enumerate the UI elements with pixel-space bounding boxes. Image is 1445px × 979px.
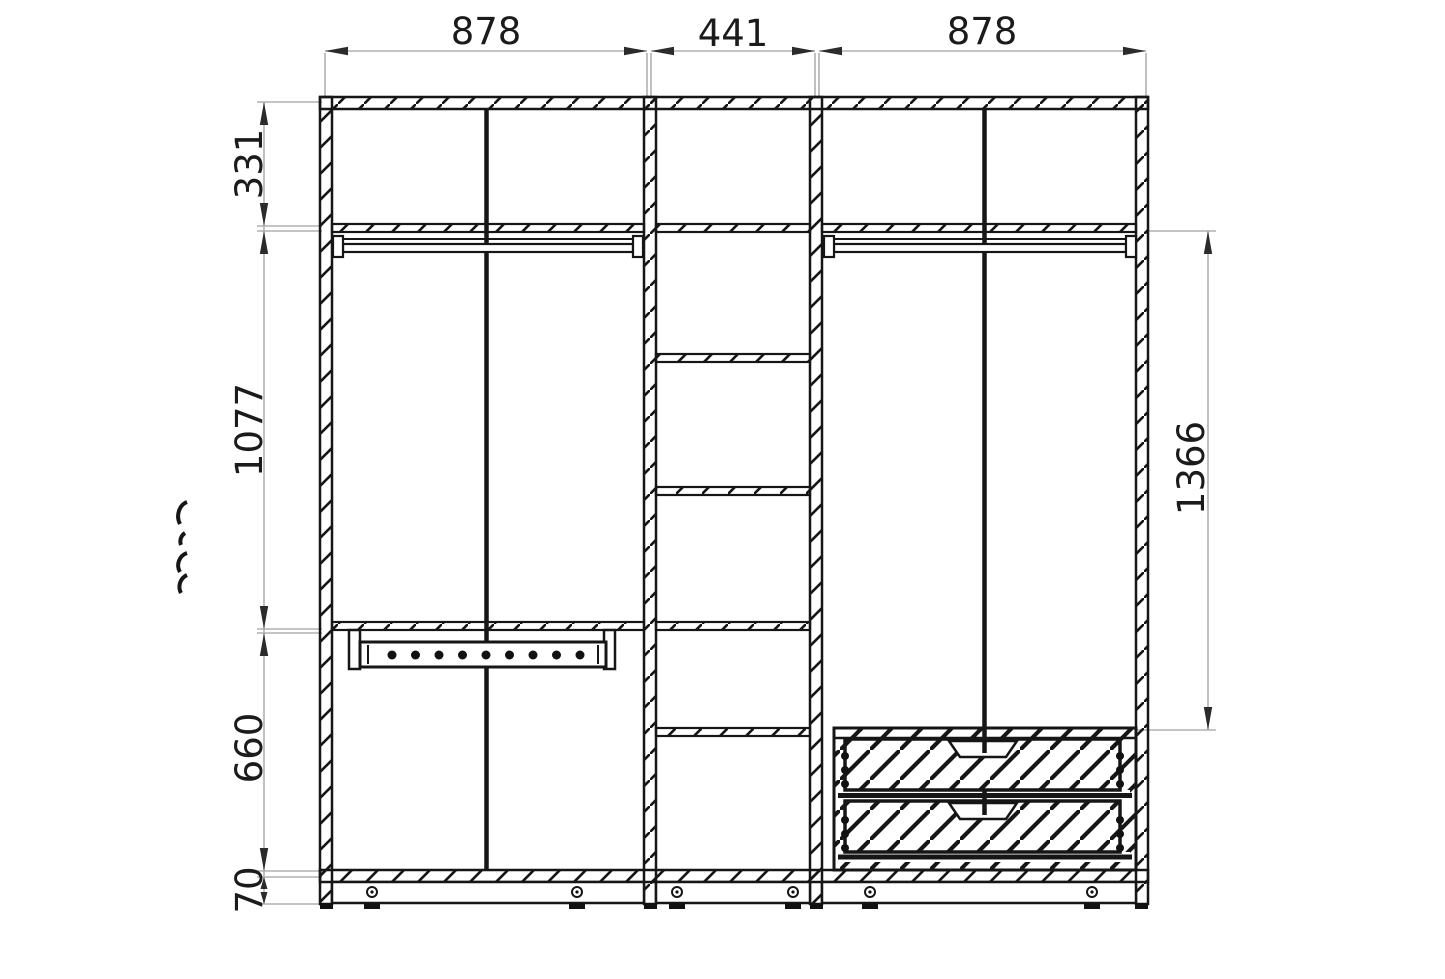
trouser-rack: [349, 630, 615, 669]
wardrobe-body: [320, 97, 1148, 909]
shelf: [332, 224, 644, 232]
shelf: [822, 224, 1136, 232]
rail-bracket: [824, 236, 834, 257]
dim-top-left-width: 878: [451, 10, 522, 53]
dim-top-middle-width: 441: [698, 12, 769, 55]
arrow-icon: [1123, 47, 1146, 55]
clipped-text-fragments: [178, 502, 187, 593]
dim-left-lower-section: 660: [228, 713, 271, 784]
shelf: [656, 487, 810, 495]
arrow-icon: [792, 47, 815, 55]
arrow-icon: [260, 231, 268, 254]
arrow-icon: [260, 633, 268, 656]
bottom-panel: [320, 870, 1148, 882]
partition-wall-left: [644, 97, 656, 904]
shelf: [656, 354, 810, 362]
wardrobe-technical-drawing: 878 441 878 331 1077 660 70 1366: [0, 0, 1445, 979]
drawer-unit: [834, 728, 1136, 870]
extension-line: [325, 53, 1146, 96]
arrow-icon: [260, 203, 268, 226]
dim-top-right-width: 878: [947, 10, 1018, 53]
arrow-icon: [624, 47, 647, 55]
right-wall: [1136, 97, 1148, 904]
arrow-icon: [260, 606, 268, 629]
arrow-icon: [1204, 231, 1212, 254]
hanging-rail-right: [824, 236, 1136, 257]
drawing-canvas: 878 441 878 331 1077 660 70 1366: [0, 0, 1445, 979]
shelf: [656, 224, 810, 232]
dim-left-plinth: 70: [228, 866, 271, 913]
rail-bracket: [333, 236, 343, 257]
dim-left-hanging-section: 1077: [228, 383, 271, 477]
shelf: [656, 728, 810, 736]
rack-bracket: [349, 630, 360, 669]
rack-holes: [388, 651, 585, 660]
left-wall: [320, 97, 332, 904]
arrow-icon: [651, 47, 674, 55]
arrow-icon: [260, 102, 268, 125]
shelf: [332, 622, 644, 630]
arrow-icon: [1204, 707, 1212, 730]
shelf: [656, 622, 810, 630]
top-panel: [320, 97, 1148, 109]
dim-right-interior-height: 1366: [1170, 421, 1213, 515]
rail-bracket: [1126, 236, 1136, 257]
plinth: [320, 882, 1148, 909]
rail-bracket: [633, 236, 643, 257]
arrow-icon: [819, 47, 842, 55]
dim-left-top-section: 331: [228, 129, 271, 200]
arrow-icon: [325, 47, 348, 55]
partition-wall-right: [810, 97, 822, 904]
